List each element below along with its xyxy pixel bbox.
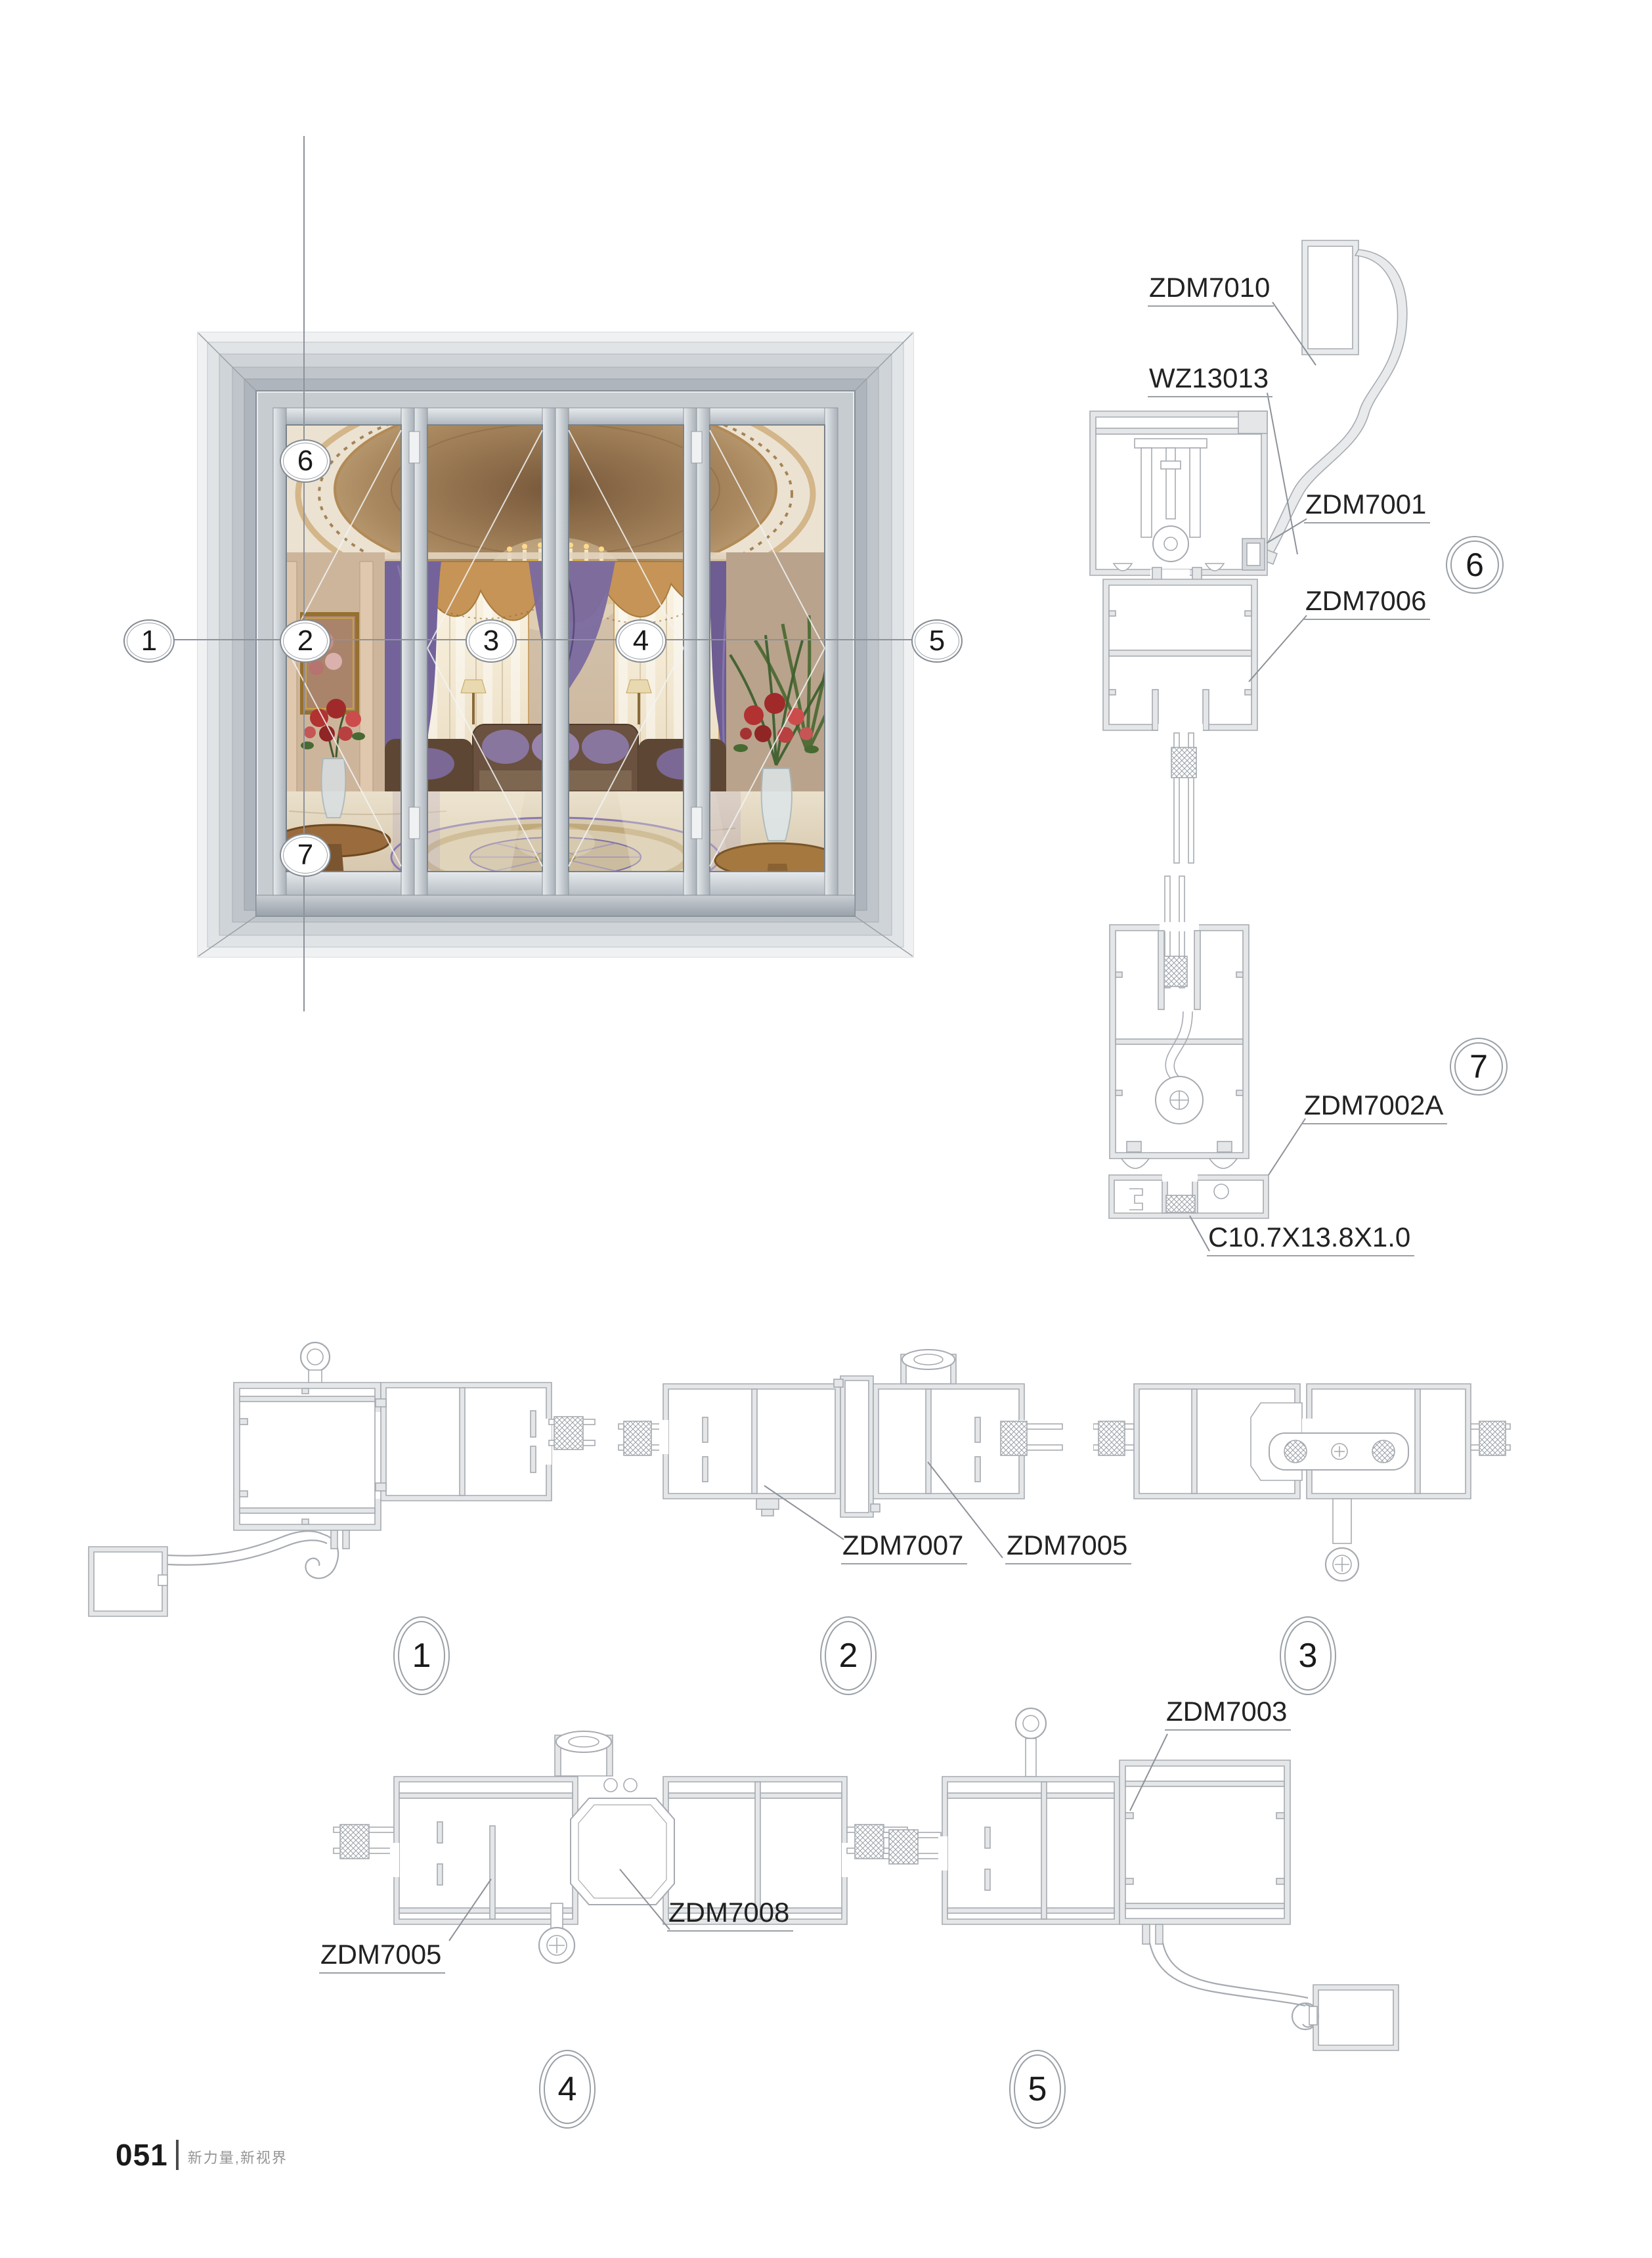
decorative-architrave [1142, 1924, 1399, 2050]
photo-callout-5: 5 [911, 619, 963, 663]
section-7-circle: 7 [1450, 1038, 1508, 1096]
callout-number: 1 [141, 625, 157, 657]
pivot-eye [1326, 1499, 1359, 1581]
label-zdm7005-s4: ZDM7005 [319, 1940, 445, 1974]
jamb-profile [234, 1383, 382, 1530]
section-3-circle: 3 [1280, 1616, 1336, 1695]
section-number: 5 [1028, 2070, 1047, 2109]
callout-number: 7 [297, 839, 313, 872]
glass-left [883, 1830, 941, 1864]
callout-number: 4 [633, 625, 649, 657]
section-3-drawing [1093, 1340, 1513, 1622]
label-c-channel: C10.7X13.8X1.0 [1207, 1223, 1414, 1256]
callout-number: 5 [929, 625, 945, 657]
left-leaf-zdm7005 [390, 1777, 578, 1924]
hinge-knuckle [901, 1350, 956, 1384]
jamb-profile-zdm7003 [1119, 1760, 1290, 1924]
top-track-zdm7001 [1090, 411, 1267, 576]
footer-tagline: 新力量,新视界 [188, 2146, 288, 2167]
label-zdm7006: ZDM7006 [1304, 587, 1430, 620]
photo-callout-2: 2 [280, 619, 331, 663]
photo-callout-6: 6 [280, 439, 331, 483]
section-6-drawing [1077, 230, 1418, 874]
callout-number: 2 [297, 625, 313, 657]
section-number: 4 [558, 2070, 577, 2109]
glass-left [619, 1421, 662, 1455]
concealed-hinge-arm [1269, 1433, 1408, 1470]
bottom-clip-zdm7007 [756, 1499, 779, 1509]
hinge-housing-zdm7008 [571, 1779, 674, 1905]
catalog-page: ZDM7010 WZ13013 ZDM7001 ZDM7006 ZDM7002A… [0, 0, 1652, 2258]
section-number: 7 [1469, 1048, 1488, 1086]
photo-callout-4: 4 [615, 619, 666, 663]
steel-insert-wz13013 [1242, 539, 1265, 570]
section-number: 3 [1299, 1636, 1318, 1675]
hinge-eye [1016, 1708, 1046, 1777]
glass-unit [1162, 876, 1187, 988]
glass-unit [549, 1417, 595, 1450]
section-2-circle: 2 [820, 1616, 877, 1695]
label-zdm7005-s2: ZDM7005 [1005, 1531, 1131, 1564]
label-zdm7001: ZDM7001 [1304, 490, 1430, 523]
top-rail-zdm7006 [1103, 567, 1257, 733]
glass-left [1093, 1421, 1134, 1455]
section-number: 1 [412, 1636, 431, 1675]
hinge-knuckle [555, 1731, 613, 1776]
label-zdm7007: ZDM7007 [841, 1531, 967, 1564]
label-zdm7010: ZDM7010 [1148, 273, 1274, 307]
photo-callout-1: 1 [123, 619, 175, 663]
decorative-architrave [89, 1530, 349, 1616]
callout-number: 6 [297, 445, 313, 477]
label-zdm7002a: ZDM7002A [1303, 1091, 1447, 1124]
section-6-circle: 6 [1446, 536, 1504, 594]
section-5-drawing [880, 1681, 1445, 2062]
section-4-circle: 4 [539, 2050, 596, 2129]
glass-left [334, 1825, 394, 1859]
leaf-profile [938, 1777, 1119, 1924]
section-1-drawing [79, 1333, 604, 1635]
section-5-circle: 5 [1009, 2050, 1066, 2129]
page-footer: 051 新力量,新视界 [116, 2137, 288, 2173]
glass-right [1471, 1421, 1510, 1455]
c-channel-clip [1166, 1195, 1195, 1212]
section-7-drawing [1064, 874, 1392, 1254]
threshold-zdm7002a [1109, 1172, 1269, 1218]
section-number: 2 [839, 1636, 858, 1675]
left-leaf [659, 1384, 840, 1516]
page-number: 051 [116, 2137, 168, 2173]
hinge-eye [301, 1342, 330, 1386]
glass-right [1001, 1421, 1062, 1455]
photo-callout-7: 7 [280, 833, 331, 877]
label-zdm7003: ZDM7003 [1165, 1697, 1291, 1731]
door-sill [256, 895, 855, 916]
leaf-profile [376, 1383, 552, 1501]
callout-number: 3 [483, 625, 499, 657]
photo-callout-3: 3 [466, 619, 517, 663]
footer-divider [176, 2140, 179, 2170]
glass-unit [1171, 733, 1196, 863]
label-zdm7008: ZDM7008 [667, 1898, 793, 1932]
label-wz13013: WZ13013 [1148, 364, 1272, 397]
section-number: 6 [1466, 546, 1484, 584]
section-1-circle: 1 [393, 1616, 450, 1695]
